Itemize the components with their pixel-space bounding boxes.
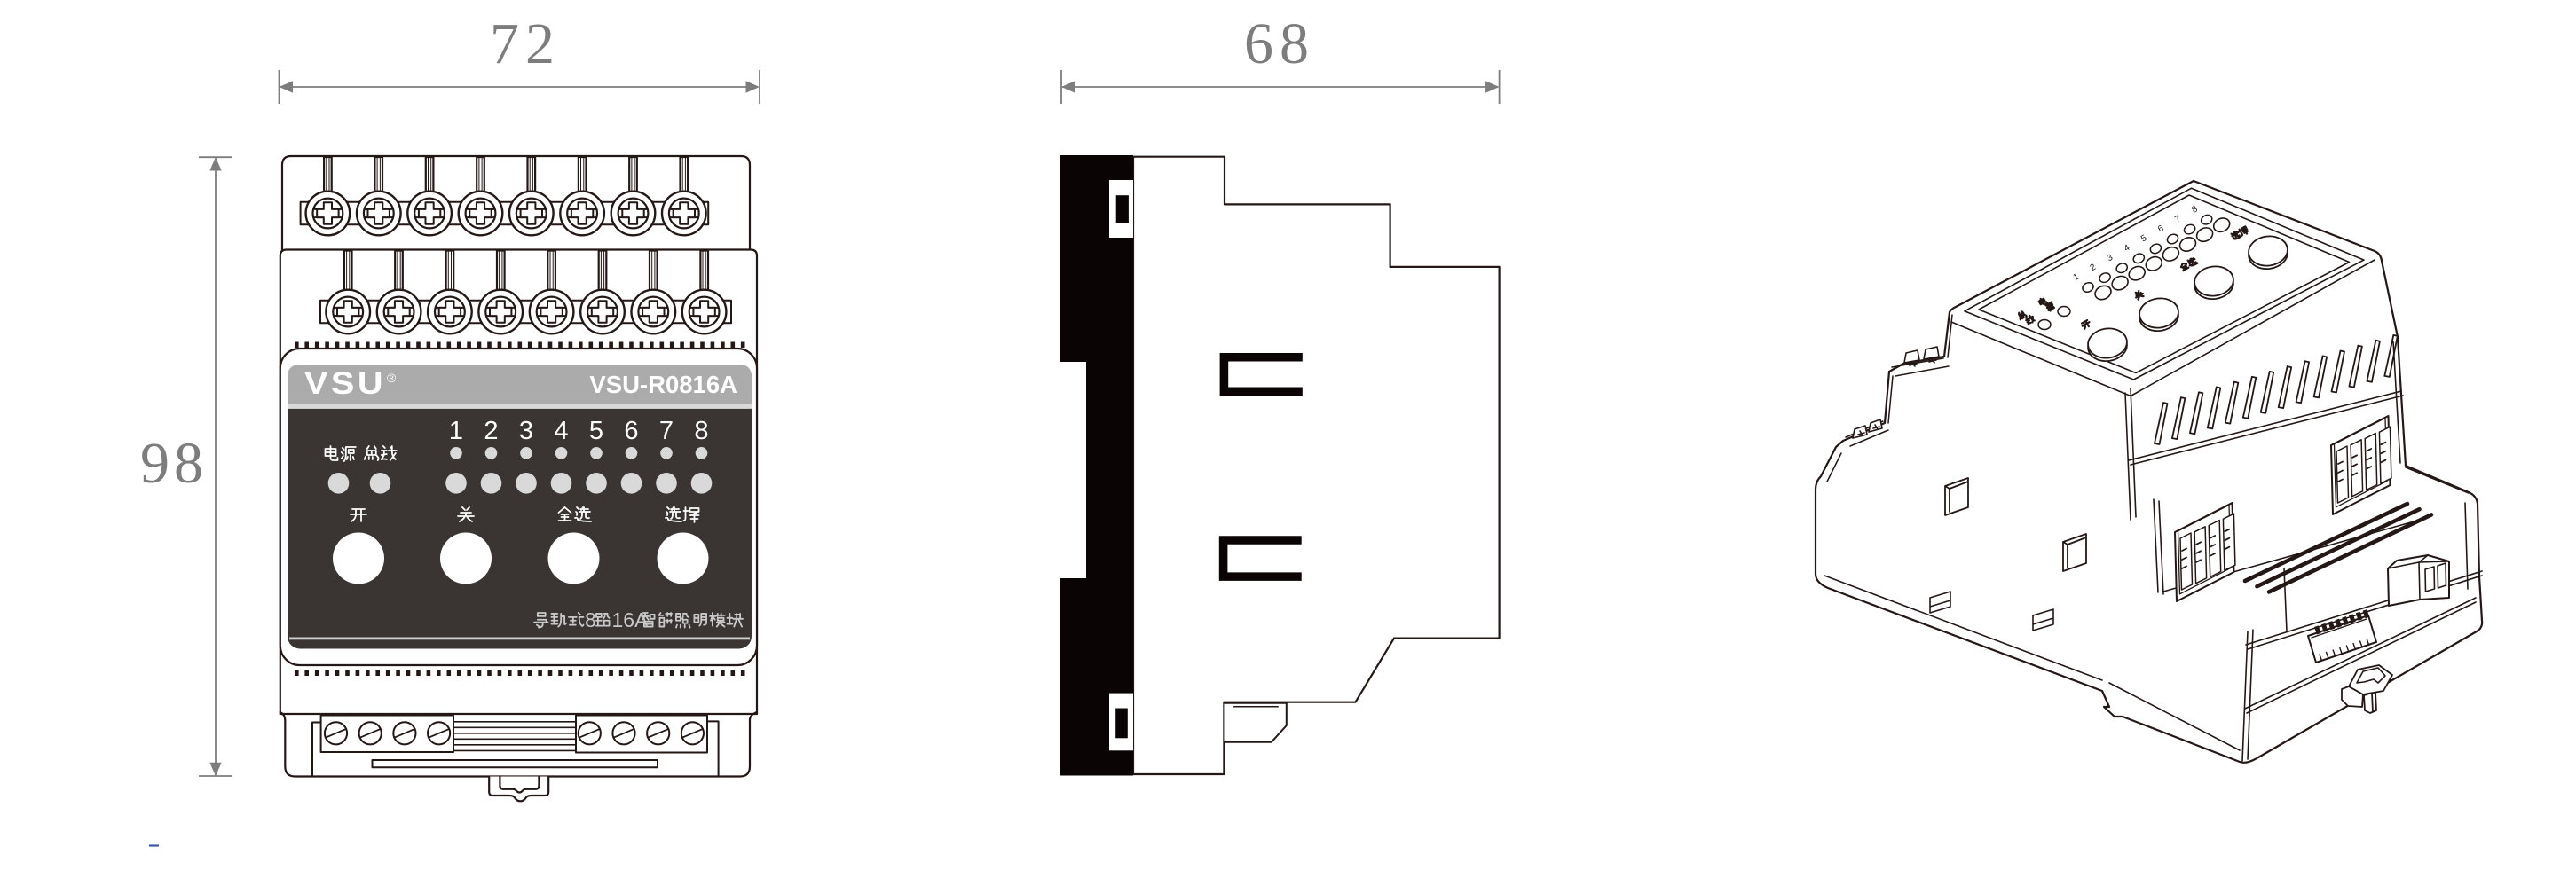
svg-text:3: 3: [519, 417, 533, 445]
svg-text:1: 1: [449, 417, 463, 445]
svg-text:8: 8: [585, 608, 596, 631]
svg-text:4: 4: [554, 417, 568, 445]
svg-text:VSU: VSU: [304, 366, 386, 401]
svg-text:2: 2: [484, 417, 498, 445]
svg-text:VSU-R0816A: VSU-R0816A: [589, 371, 737, 398]
svg-text:5: 5: [589, 417, 603, 445]
svg-text:72: 72: [490, 12, 561, 76]
svg-text:7: 7: [659, 417, 674, 445]
svg-text:98: 98: [140, 431, 208, 496]
svg-text:®: ®: [387, 371, 397, 385]
svg-text:8: 8: [694, 417, 708, 445]
svg-text:68: 68: [1244, 12, 1315, 76]
svg-text:6: 6: [624, 417, 638, 445]
